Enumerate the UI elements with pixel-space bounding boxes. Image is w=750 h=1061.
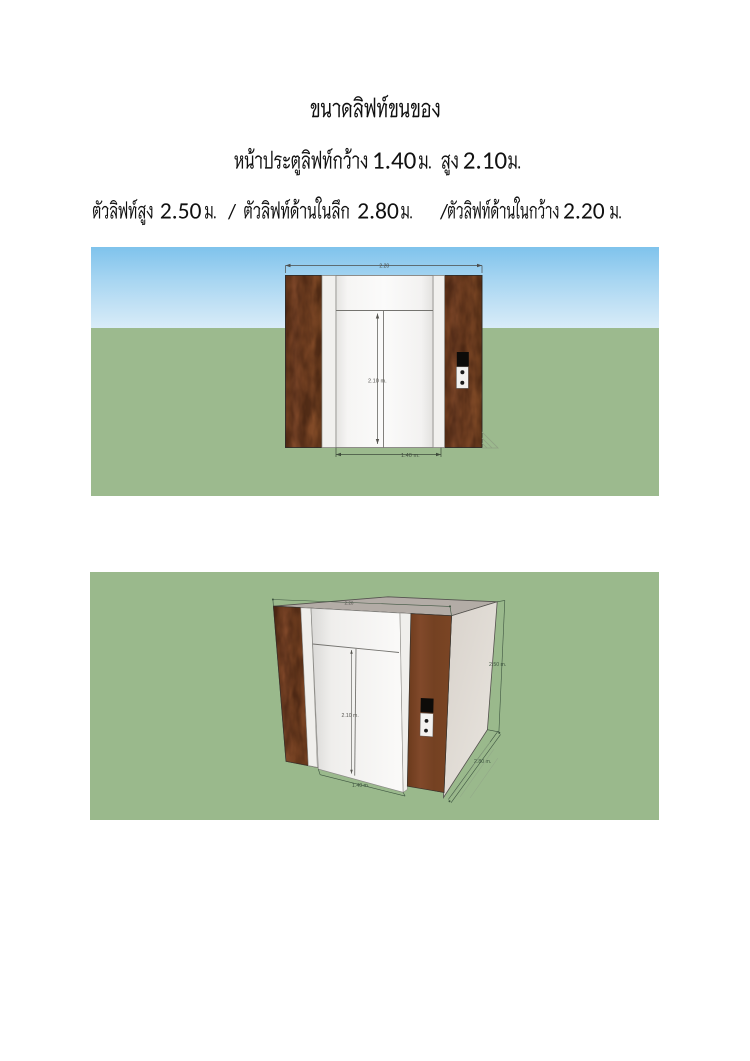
svg-text:1.40 m.: 1.40 m.	[352, 783, 369, 789]
svg-text:2.80 m.: 2.80 m.	[474, 759, 491, 765]
svg-text:2.50 m.: 2.50 m.	[489, 662, 506, 668]
svg-text:2.20: 2.20	[345, 601, 354, 606]
svg-text:2.10 m.: 2.10 m.	[368, 379, 387, 385]
svg-text:1.40 m.: 1.40 m.	[401, 453, 420, 459]
svg-text:2.10 m.: 2.10 m.	[342, 713, 359, 719]
svg-text:2.20: 2.20	[379, 263, 389, 269]
